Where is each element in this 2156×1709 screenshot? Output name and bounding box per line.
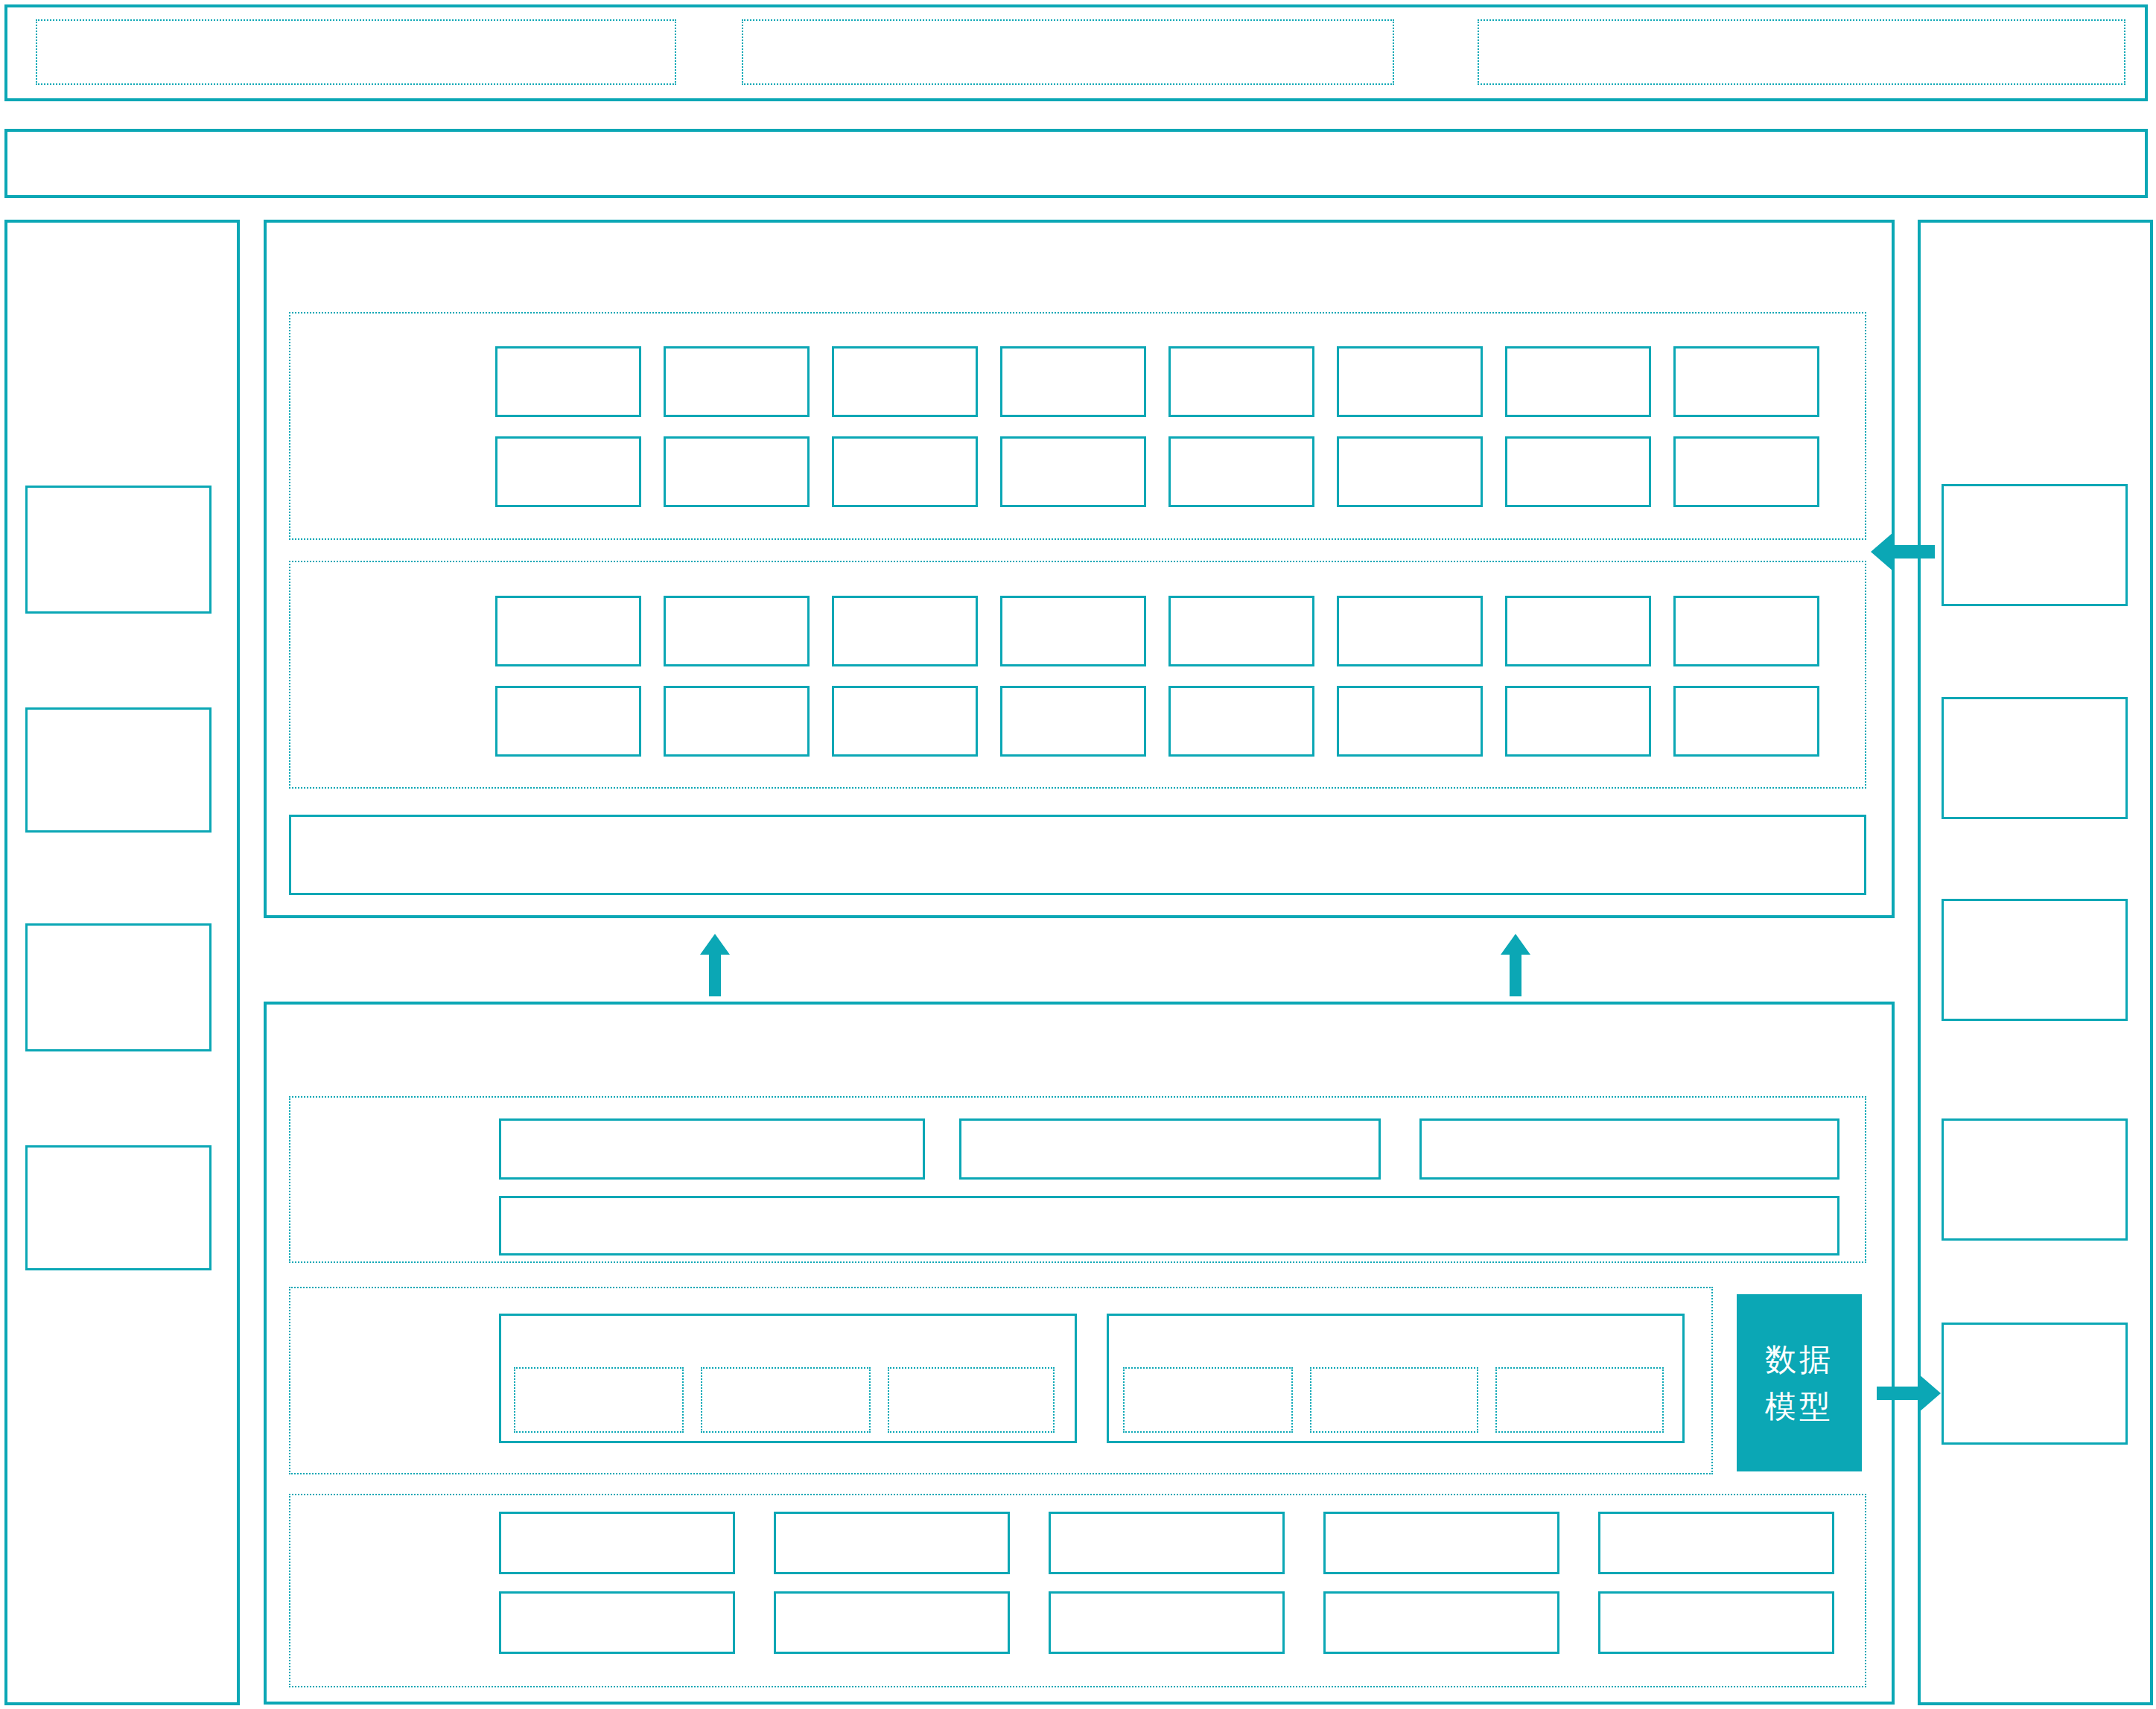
- grid-box: [1598, 1591, 1834, 1654]
- arrow-up-icon: [700, 934, 730, 996]
- header-slot-3: [1478, 19, 2125, 85]
- sub-slot: [888, 1367, 1055, 1433]
- grid-box: [1505, 686, 1651, 757]
- data-model-label-line1: 数据: [1765, 1336, 1834, 1383]
- grid-box: [832, 686, 978, 757]
- secondary-bar: [4, 129, 2148, 198]
- sub-slot: [1123, 1367, 1293, 1433]
- grid-box: [1337, 436, 1483, 507]
- grid-box: [1673, 436, 1819, 507]
- lower-dotted-section-3: [289, 1494, 1866, 1687]
- grid-box: [832, 596, 978, 666]
- grid-box: [1049, 1591, 1285, 1654]
- grid-box: [774, 1512, 1010, 1574]
- grid-box: [1000, 346, 1146, 417]
- grid-box: [774, 1591, 1010, 1654]
- left-sidebar-box-1: [25, 486, 212, 614]
- grid-box: [1000, 596, 1146, 666]
- right-sidebar-box-3: [1942, 899, 2128, 1021]
- box-row: [495, 596, 1819, 666]
- right-sidebar-box-2: [1942, 697, 2128, 819]
- sub-slot: [701, 1367, 871, 1433]
- grid-box: [1323, 1591, 1559, 1654]
- grid-box: [1673, 596, 1819, 666]
- left-sidebar-box-2: [25, 707, 212, 833]
- grid-box: [1673, 686, 1819, 757]
- wide-box-2: [959, 1118, 1381, 1180]
- grid-box: [1673, 346, 1819, 417]
- box-row: [495, 686, 1819, 757]
- grid-box: [495, 346, 641, 417]
- upper-dotted-section-2: [289, 561, 1866, 789]
- data-model-box: 数据 模型: [1737, 1294, 1862, 1471]
- grid-box: [1323, 1512, 1559, 1574]
- lower-dotted-section-2: [289, 1287, 1713, 1474]
- grid-box: [1168, 436, 1314, 507]
- sub-slot: [514, 1367, 684, 1433]
- arrow-left-icon: [1871, 532, 1935, 571]
- right-sidebar-box-5: [1942, 1323, 2128, 1445]
- upper-dotted-section-1: [289, 312, 1866, 540]
- grid-box: [495, 686, 641, 757]
- upper-panel: [264, 220, 1895, 918]
- grid-box: [1168, 346, 1314, 417]
- left-sidebar: [4, 220, 240, 1705]
- header-slot-1: [36, 19, 676, 85]
- grid-box: [664, 346, 810, 417]
- right-sidebar: [1918, 220, 2153, 1705]
- module-box-right: [1107, 1314, 1685, 1443]
- data-model-label-line2: 模型: [1765, 1383, 1834, 1430]
- module-box-left: [499, 1314, 1077, 1443]
- grid-box: [499, 1591, 735, 1654]
- top-header-bar: [4, 4, 2148, 101]
- grid-box: [664, 686, 810, 757]
- grid-box: [664, 596, 810, 666]
- grid-box: [1168, 596, 1314, 666]
- grid-box: [1505, 596, 1651, 666]
- header-slot-2: [742, 19, 1394, 85]
- grid-box: [664, 436, 810, 507]
- grid-box: [1505, 346, 1651, 417]
- grid-box: [1000, 686, 1146, 757]
- left-sidebar-box-4: [25, 1145, 212, 1270]
- lower-panel: 数据 模型: [264, 1002, 1895, 1705]
- box-row: [495, 346, 1819, 417]
- grid-box: [499, 1512, 735, 1574]
- full-width-box: [499, 1196, 1839, 1256]
- grid-box: [1049, 1512, 1285, 1574]
- grid-box: [1337, 346, 1483, 417]
- left-sidebar-box-3: [25, 923, 212, 1051]
- grid-box: [1598, 1512, 1834, 1574]
- upper-wide-box: [289, 815, 1866, 895]
- right-sidebar-box-4: [1942, 1118, 2128, 1241]
- architecture-diagram: 数据 模型: [0, 0, 2156, 1709]
- arrow-up-icon: [1501, 934, 1530, 996]
- right-sidebar-box-1: [1942, 484, 2128, 606]
- grid-box: [1168, 686, 1314, 757]
- box-row: [495, 436, 1819, 507]
- wide-box-3: [1419, 1118, 1839, 1180]
- lower-dotted-section-1: [289, 1096, 1866, 1263]
- grid-box: [495, 596, 641, 666]
- grid-box: [1337, 686, 1483, 757]
- arrow-right-icon: [1877, 1374, 1941, 1413]
- grid-box: [1337, 596, 1483, 666]
- grid-box: [495, 436, 641, 507]
- sub-slot: [1495, 1367, 1664, 1433]
- sub-slot: [1310, 1367, 1478, 1433]
- grid-box: [832, 436, 978, 507]
- grid-box: [1000, 436, 1146, 507]
- wide-box-1: [499, 1118, 925, 1180]
- grid-box: [1505, 436, 1651, 507]
- box-row: [499, 1591, 1834, 1654]
- box-row: [499, 1512, 1834, 1574]
- grid-box: [832, 346, 978, 417]
